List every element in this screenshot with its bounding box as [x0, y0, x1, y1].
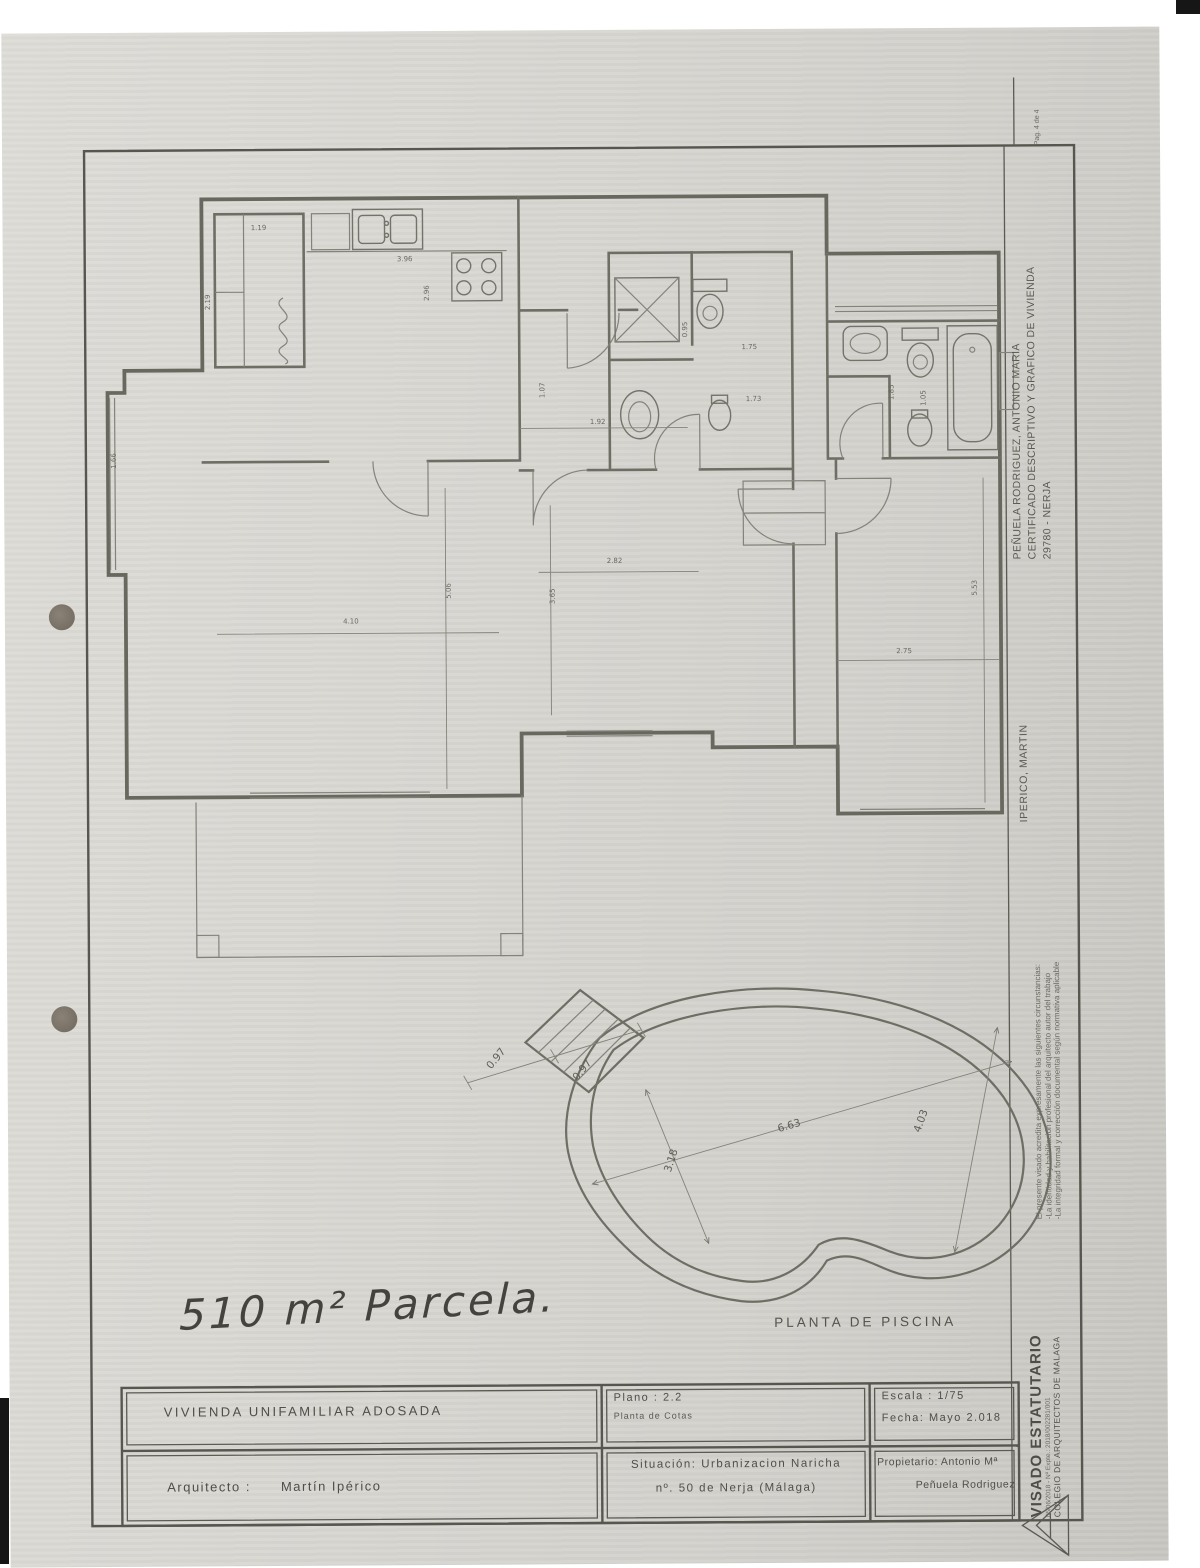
location-line1: Situación: Urbanizacion Naricha: [608, 1457, 864, 1471]
dimension-label: 2.82: [607, 557, 623, 565]
owner-line2: Peñuela Rodriguez: [877, 1478, 1015, 1491]
pool-dimension-lines: [463, 1020, 1012, 1254]
margin-architect-name: IPERICO, MARTIN: [1017, 632, 1030, 822]
dimension-label: 0.95: [681, 322, 689, 338]
margin-owner-block: PEÑUELA RODRIGUEZ, ANTONIO MARIA CERTIFI…: [1008, 159, 1055, 559]
dimension-label: 6.63: [776, 1117, 802, 1135]
dimension-label: 3.96: [397, 255, 413, 263]
page-number-note: Pag. 4 de 4: [1034, 85, 1041, 145]
dimension-label: 1.66: [110, 453, 118, 469]
stove-icon: [452, 253, 502, 301]
architect-row: Arquitecto :Martín Ipérico: [167, 1478, 381, 1494]
doors: [372, 311, 891, 546]
dimension-label: 4.10: [343, 617, 359, 625]
project-title: VIVIENDA UNIFAMILIAR ADOSADA: [164, 1403, 443, 1420]
dimension-label: 1.73: [746, 395, 762, 403]
washbasin-icon: [843, 326, 887, 360]
colegio-name: COLEGIO DE ARQUITECTOS DE MALAGA: [1051, 1221, 1063, 1517]
dimension-label: 5.53: [971, 580, 979, 596]
dimension-label: 2.96: [423, 285, 431, 301]
dimension-label: 1.85: [887, 384, 895, 400]
dimension-label: 1.05: [920, 390, 928, 406]
dimension-label: 5.06: [445, 583, 453, 599]
terrace: [196, 795, 523, 957]
location-line2: nº. 50 de Nerja (Málaga): [608, 1481, 864, 1495]
folding-door-icon: [279, 298, 288, 364]
bidet-icon: [709, 395, 731, 430]
dimension-label: 1.92: [590, 418, 606, 426]
dimension-label: 0.97: [484, 1046, 508, 1072]
visado-title: VISADO ESTATUTARIO: [1027, 1221, 1046, 1517]
dimension-label: 3.18: [662, 1148, 681, 1174]
toilet-icon: [693, 279, 727, 328]
windows: [109, 305, 1016, 814]
bathtub-icon: [947, 326, 998, 450]
margin-postal-city: 29780 - NERJA: [1038, 159, 1055, 559]
visado-stamp-block: VISADO ESTATUTARIO 05/06/2018 - Nº Expte…: [1027, 1221, 1063, 1517]
pool-plan-caption: PLANTA DE PISCINA: [774, 1314, 956, 1330]
architect-label: Arquitecto :: [167, 1479, 251, 1495]
date-value: Fecha: Mayo 2.018: [882, 1412, 1002, 1425]
column-icon: [501, 933, 523, 955]
washbasin-icon: [621, 391, 659, 439]
appliance-icon: [311, 214, 349, 250]
sheet-number: Plano : 2.2: [614, 1392, 683, 1404]
dimension-label: 2.19: [204, 295, 212, 311]
architect-name: Martín Ipérico: [281, 1478, 382, 1494]
house-walls: [106, 195, 1002, 818]
kitchen-sink-icon: [352, 209, 422, 249]
dimension-label: 3.65: [549, 588, 557, 604]
dimension-label: 1.75: [741, 343, 757, 351]
scanned-page: PLANTA DE PISCINA 1.192.193.962.960.951.…: [0, 0, 1200, 1568]
owner-line1: Propietario: Antonio Mª: [877, 1455, 1017, 1468]
dimension-label: 4.03: [912, 1108, 931, 1134]
dimension-lines: [216, 426, 1000, 808]
scale-value: Escala : 1/75: [882, 1390, 965, 1403]
toilet-icon: [902, 328, 938, 377]
dimension-label: 0.97: [570, 1057, 594, 1083]
dimension-label: 1.19: [251, 224, 267, 232]
dimension-label: 2.75: [896, 647, 912, 655]
sheet-name: Planta de Cotas: [614, 1410, 693, 1420]
dimension-label: 1.07: [538, 383, 546, 399]
column-icon: [197, 935, 219, 957]
visado-conditions-block: El presente visado acredita expresamente…: [1032, 811, 1063, 1219]
dimension-labels: 1.192.193.962.960.951.751.731.071.921.85…: [108, 220, 982, 1177]
bidet-icon: [908, 410, 932, 446]
